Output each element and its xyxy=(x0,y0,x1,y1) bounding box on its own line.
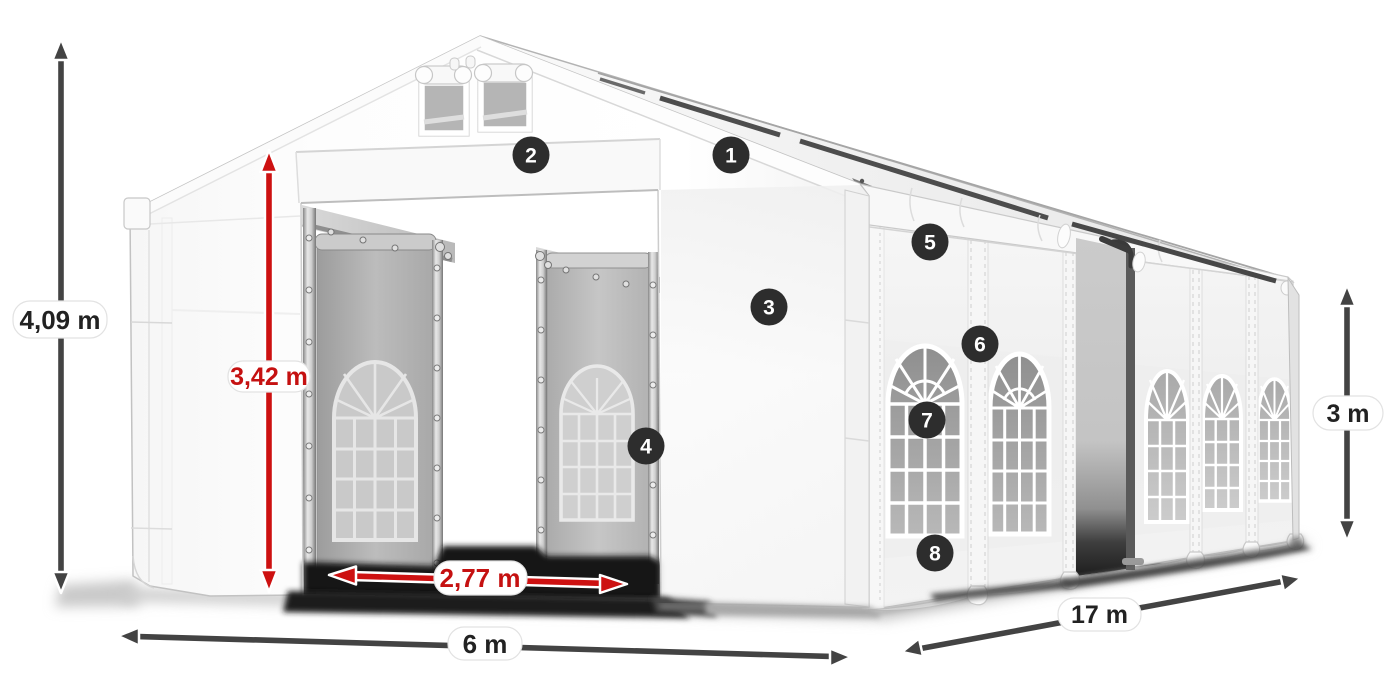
svg-text:3: 3 xyxy=(763,297,775,320)
svg-text:5: 5 xyxy=(924,232,936,255)
svg-text:2: 2 xyxy=(525,145,537,168)
svg-text:6 m: 6 m xyxy=(463,629,508,659)
svg-text:3,42 m: 3,42 m xyxy=(230,363,308,391)
svg-text:3 m: 3 m xyxy=(1326,400,1369,428)
svg-text:2,77 m: 2,77 m xyxy=(440,563,521,593)
svg-text:7: 7 xyxy=(921,410,933,433)
svg-text:6: 6 xyxy=(974,334,986,357)
svg-text:17 m: 17 m xyxy=(1071,601,1128,629)
svg-text:1: 1 xyxy=(725,145,737,168)
svg-text:4,09 m: 4,09 m xyxy=(20,305,101,335)
svg-text:8: 8 xyxy=(929,543,941,566)
svg-text:4: 4 xyxy=(640,436,652,459)
